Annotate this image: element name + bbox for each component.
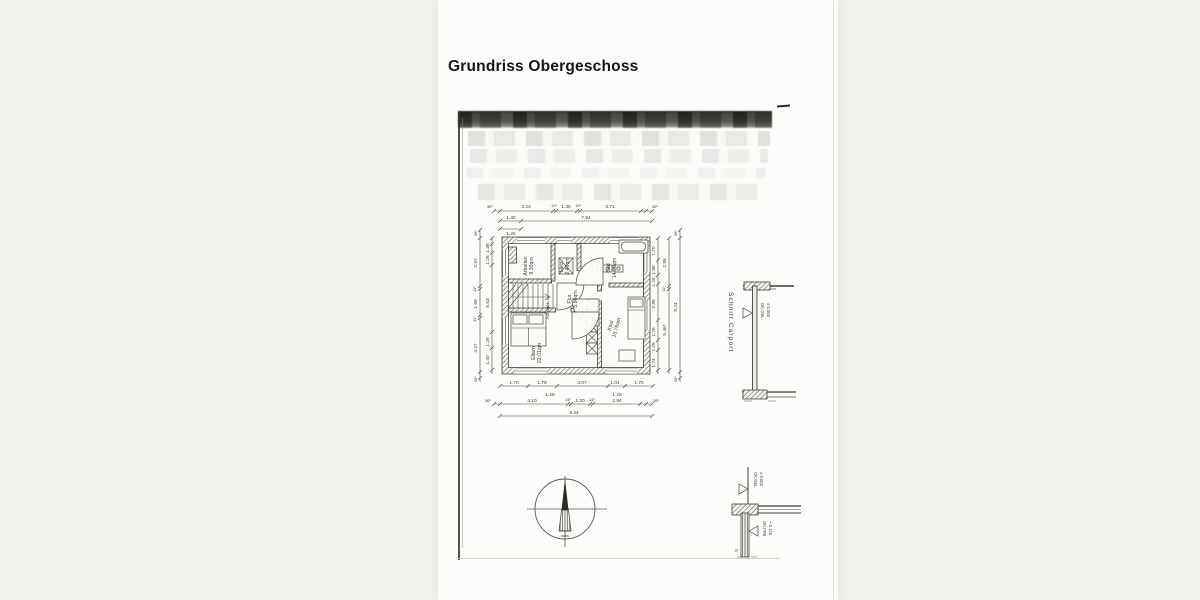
window bbox=[557, 238, 571, 244]
dim-label: 5.53 bbox=[485, 298, 491, 308]
dim-label: 11⁵ bbox=[472, 286, 477, 292]
dim-label: 36⁵ bbox=[487, 204, 493, 209]
dim-label: 36⁵ bbox=[673, 376, 678, 382]
level-marker-gel-value: ± 0.000 bbox=[766, 303, 771, 318]
dim-label: 1.86 bbox=[651, 265, 657, 275]
dim-label: 1.74 bbox=[651, 358, 657, 368]
dim-label: 1.70 bbox=[651, 246, 657, 256]
annotation-auflager: Auflager bbox=[545, 302, 550, 319]
level-marker-ffb-value: + 0.140 bbox=[768, 521, 773, 536]
level-marker-gel-2-value: ± 0.000 bbox=[759, 472, 764, 487]
dim-label: 9.24 bbox=[673, 302, 679, 312]
dim-label: 1.25 bbox=[485, 337, 491, 347]
section-title: Schnitt Carport bbox=[727, 292, 734, 352]
dim-label: 4.10 bbox=[527, 398, 537, 404]
dim-label: 1.25 bbox=[485, 255, 491, 265]
dim-label: 1.25 bbox=[612, 392, 622, 398]
carport-section: Schnitt Carport OK.GEL. ± 0.000 OK.GEL. … bbox=[727, 282, 801, 557]
floor-plan-drawing: Arbeiten 9.30qm Heiz. 2.40qm Bad 14.00qm… bbox=[440, 0, 840, 600]
dim-label: 1.38 bbox=[485, 243, 491, 253]
room-area-flur: 5.96qm bbox=[573, 290, 579, 307]
dim-label: 36⁵ bbox=[485, 398, 491, 403]
dim-label: 1.70 bbox=[634, 380, 644, 386]
level-marker-gel-2: OK.GEL. bbox=[753, 472, 758, 489]
dim-label: 11⁵ bbox=[565, 397, 571, 402]
carport-footing-detail: OK.GEL. ± 0.000 OK.FFB + 0.140 S bbox=[732, 467, 801, 557]
dim-label: 11⁵ bbox=[589, 397, 595, 402]
window bbox=[607, 368, 637, 374]
dim-label: 1.70 bbox=[509, 380, 519, 386]
dim-label: 1.01 bbox=[610, 380, 620, 386]
dim-label: 1.40 bbox=[485, 355, 491, 365]
double-bed bbox=[511, 313, 546, 346]
dim-label: 2.97 bbox=[473, 258, 479, 268]
dim-label: 11⁵ bbox=[661, 286, 666, 292]
dim-label: 5.46⁵ bbox=[662, 324, 668, 335]
dimensions-right: 1.70 1.86 1.25 2.88 1.76 1.25 1.74 2.95 … bbox=[651, 228, 682, 382]
dim-label: 1.25 bbox=[651, 342, 657, 352]
room-area-heiz: 2.40qm bbox=[565, 257, 571, 274]
dim-label: 36⁵ bbox=[652, 204, 658, 209]
window bbox=[517, 238, 545, 244]
dim-label: 1.76 bbox=[651, 327, 657, 337]
carport-post-detail: OK.GEL. ± 0.000 bbox=[742, 282, 796, 401]
window bbox=[503, 318, 509, 344]
level-marker-ffb: OK.FFB bbox=[762, 521, 767, 536]
dim-label: 2.94 bbox=[612, 398, 622, 404]
dimensions-left: 36⁵ 2.97 11⁵ 1.69 11⁵ 4.27 36⁵ 1.38 1.25… bbox=[472, 228, 494, 382]
dim-label: 36⁵ bbox=[673, 230, 678, 236]
dim-label: 11⁵ bbox=[551, 203, 557, 208]
dim-label: 3.07 bbox=[577, 380, 587, 386]
dim-label: 3.23 bbox=[521, 204, 531, 210]
dim-label: 1.30 bbox=[506, 215, 516, 221]
dim-label: 2.95 bbox=[662, 258, 668, 268]
level-marker-gel: OK.GEL. bbox=[760, 303, 765, 320]
dim-label: 1.25 bbox=[651, 277, 657, 287]
dim-label: 1.69 bbox=[473, 299, 479, 309]
dim-label: 3.71 bbox=[605, 204, 615, 210]
dim-label: 1.20 bbox=[575, 398, 585, 404]
dim-label: 1.30 bbox=[561, 204, 571, 210]
room-area-kind: 13.76qm bbox=[612, 317, 623, 338]
scanned-document: Grundriss Obergeschoss bbox=[0, 0, 1200, 600]
room-area-bad: 14.00qm bbox=[612, 258, 618, 278]
room-area-eltern: 22.01qm bbox=[537, 343, 543, 363]
dim-label: 36⁵ bbox=[653, 398, 659, 403]
dim-label: 1.76 bbox=[537, 380, 547, 386]
dim-label: 7.94 bbox=[581, 215, 591, 221]
desk bbox=[619, 350, 635, 361]
dim-label: 1.25 bbox=[545, 392, 555, 398]
dim-label: 36⁵ bbox=[473, 230, 478, 236]
dimensions-bottom: 1.70 1.76 3.07 1.01 1.70 1.25 1.25 36⁵ 4… bbox=[485, 380, 659, 418]
dim-label: 9.24 bbox=[569, 410, 579, 416]
single-bed bbox=[628, 297, 645, 339]
dim-label: 2.88 bbox=[651, 299, 657, 309]
window bbox=[515, 368, 547, 374]
room-area-arbeiten: 9.30qm bbox=[529, 257, 535, 274]
dim-label: 11⁵ bbox=[575, 203, 581, 208]
dim-label: 4.27 bbox=[473, 343, 479, 353]
section-s-mark: S bbox=[734, 549, 739, 552]
dim-label: 36⁵ bbox=[473, 376, 478, 382]
bathtub bbox=[619, 240, 648, 253]
north-arrow bbox=[527, 476, 607, 547]
dim-label: 1.25 bbox=[506, 231, 516, 237]
window bbox=[503, 250, 509, 276]
dimensions-top: 36⁵ 3.23 11⁵ 1.30 11⁵ 3.71 36⁵ 1.30 7.94… bbox=[487, 203, 658, 237]
dim-label: 11⁵ bbox=[472, 316, 477, 322]
